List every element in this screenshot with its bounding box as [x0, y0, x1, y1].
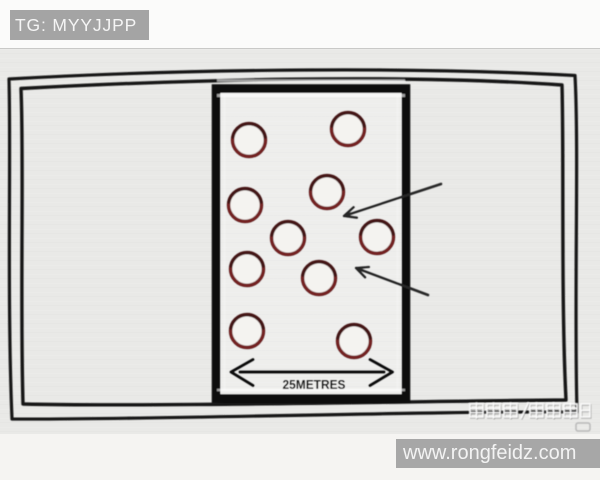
svg-text:25METRES: 25METRES: [283, 378, 346, 392]
